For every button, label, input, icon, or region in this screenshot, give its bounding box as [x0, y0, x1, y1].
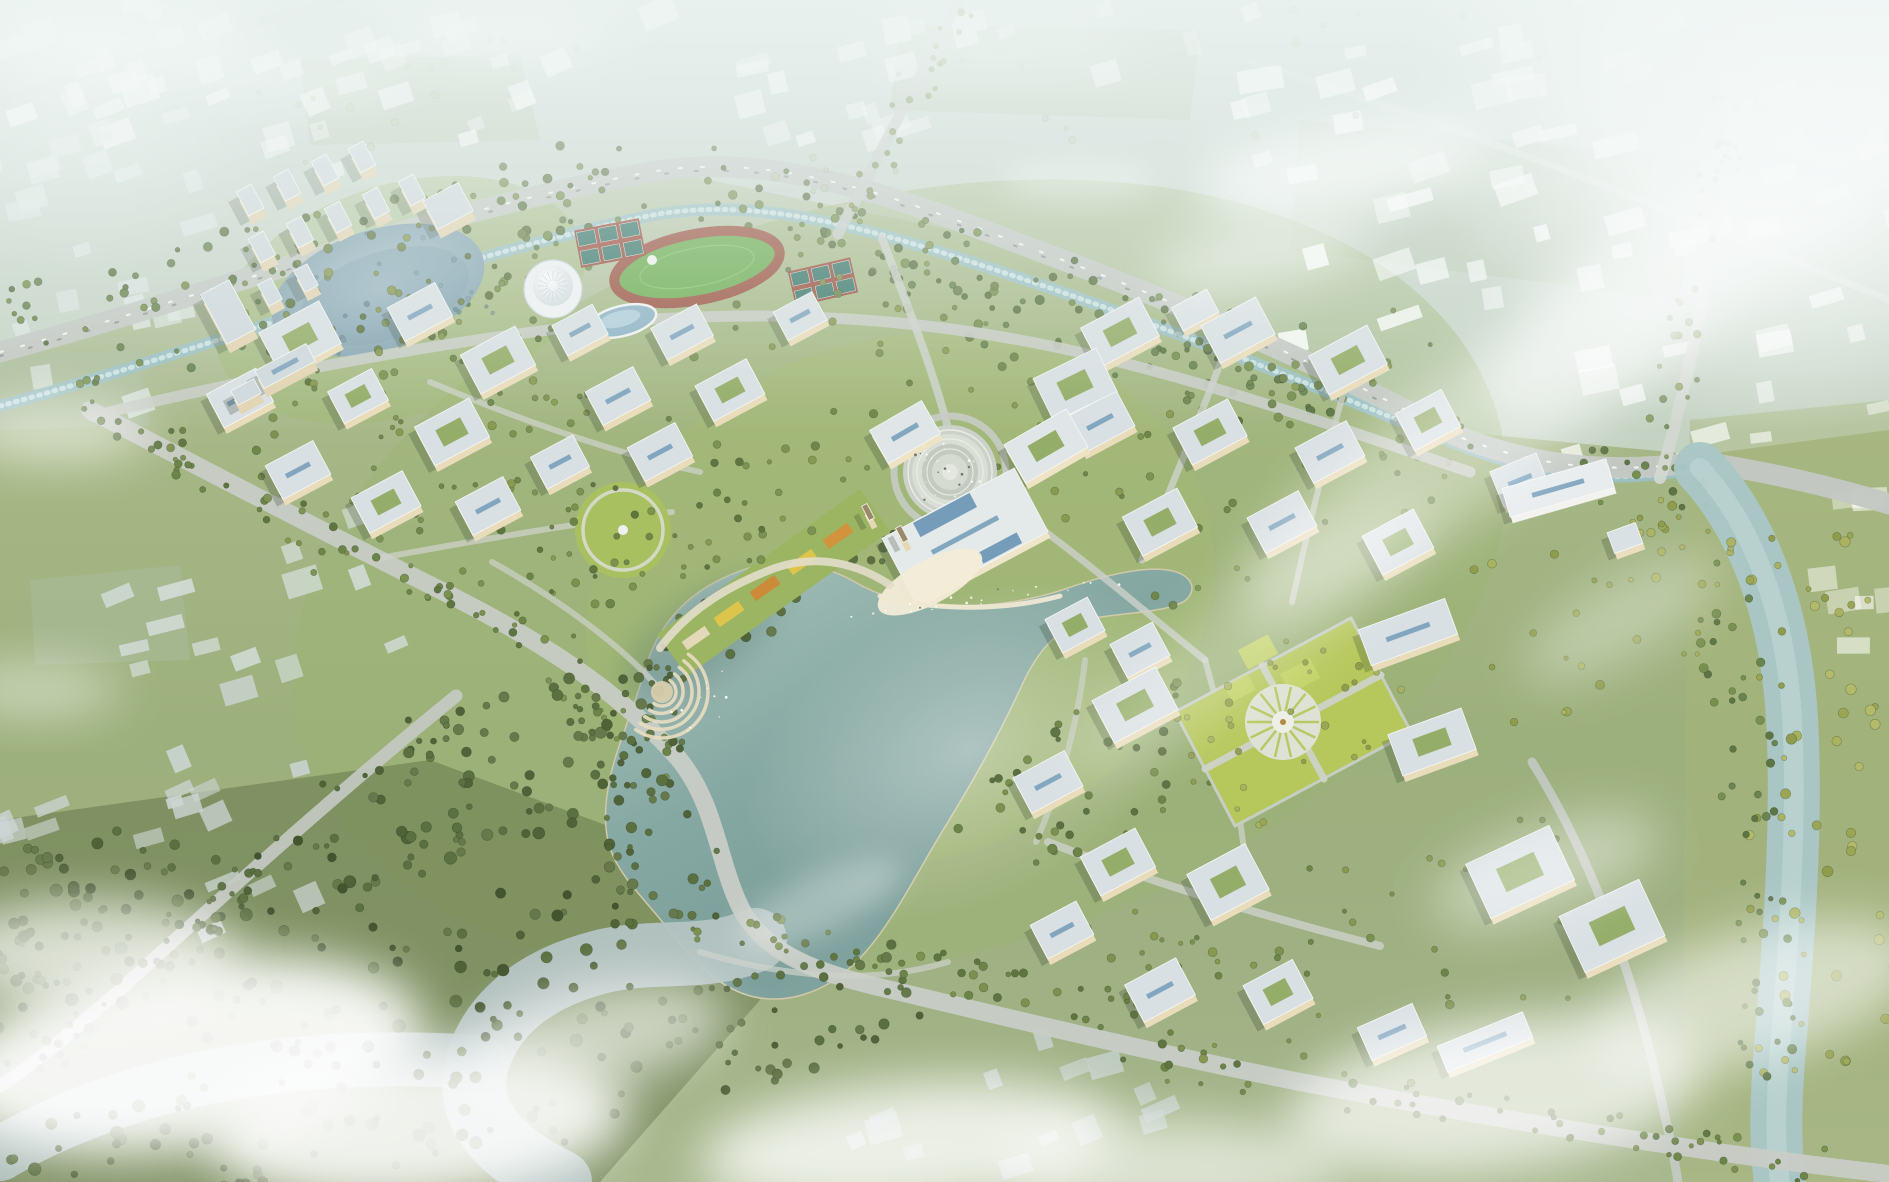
amphitheater-stage [651, 681, 673, 703]
sunburst-monument [1280, 719, 1286, 725]
atmospheric-top-haze [0, 0, 1889, 430]
west-circle-fountain [618, 525, 628, 535]
aerial-rendering-canvas [0, 0, 1889, 1182]
central-plaza-core [942, 464, 958, 480]
campus-master-plan-aerial [0, 0, 1889, 1182]
ghost-green-patch-5 [30, 565, 190, 665]
scene-layers [0, 0, 1889, 1182]
